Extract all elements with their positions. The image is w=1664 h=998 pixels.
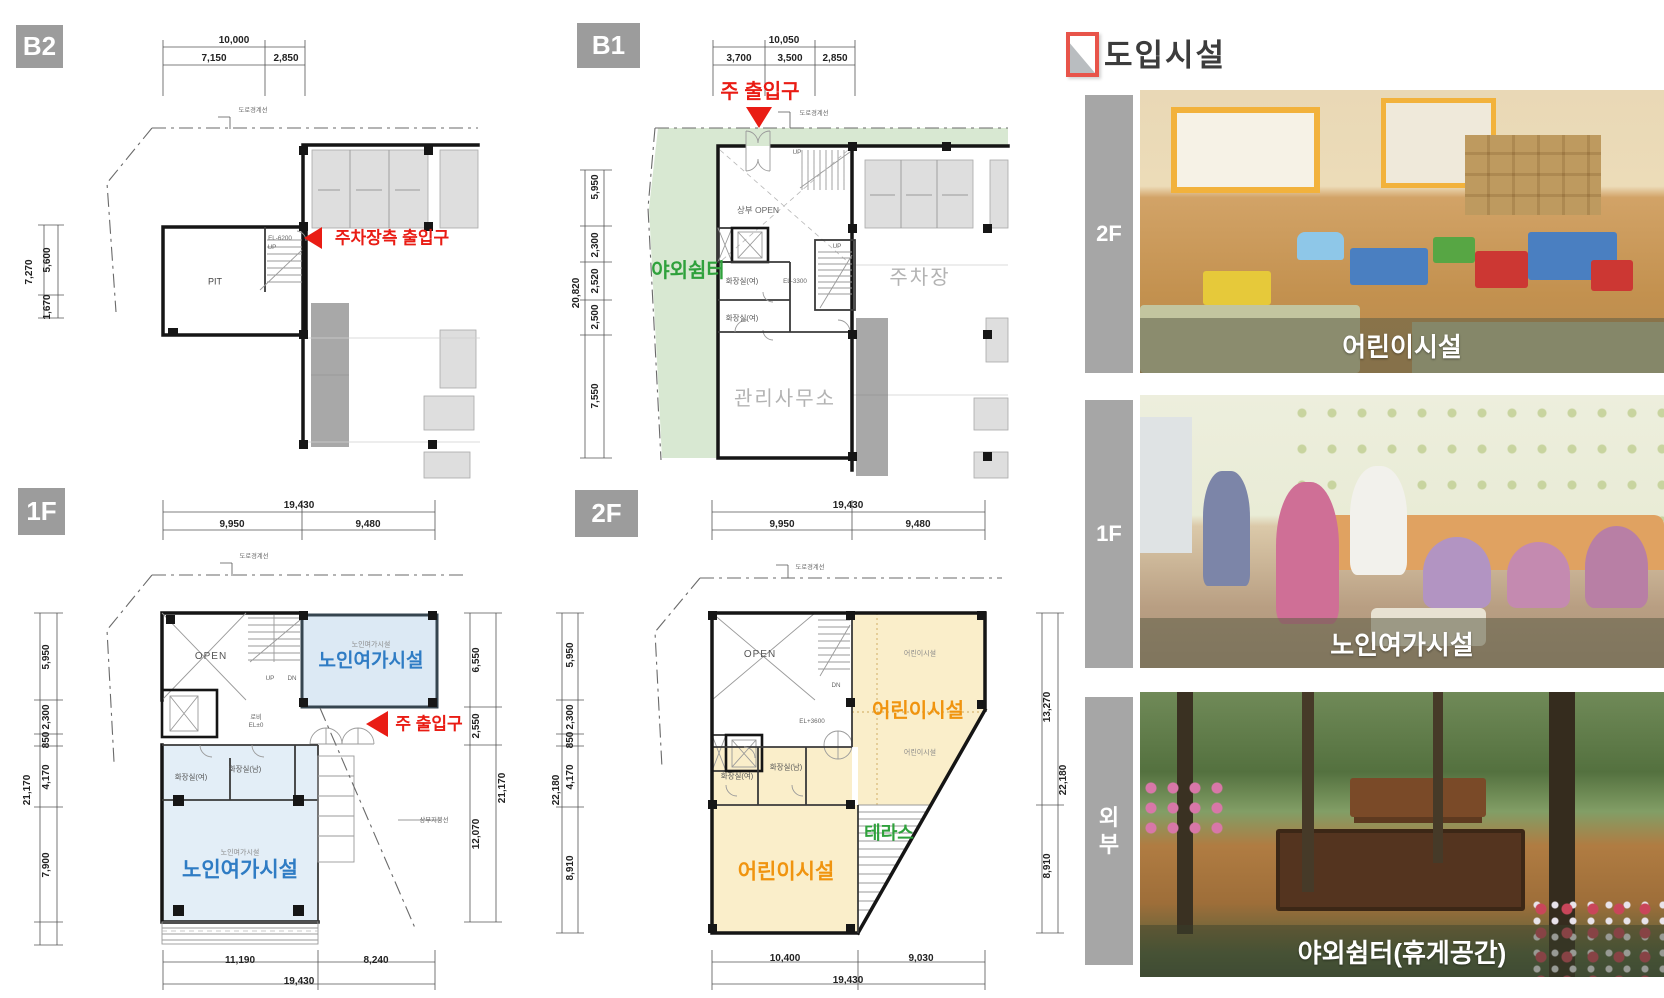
facility-floor-tab-2f: 2F xyxy=(1085,95,1133,373)
f1-dim-bottom-seg1: 11,190 xyxy=(225,956,255,966)
f2-el-label: EL+3600 xyxy=(799,719,824,725)
f1-lobby-label: 로비 xyxy=(250,715,262,721)
f1-toilet-f-label: 화장실(여) xyxy=(175,773,208,781)
f2-dim-left-seg1: 5,950 xyxy=(566,642,576,667)
photo-senior-door xyxy=(1140,417,1192,554)
f2-child-main2-label: 어린이시설 xyxy=(738,862,835,883)
f1-plan-drawing xyxy=(34,500,502,990)
f2-dim-top-seg2: 9,480 xyxy=(905,520,930,530)
f2-child-small2-label: 어린이시설 xyxy=(904,750,936,757)
f2-plan-drawing xyxy=(556,500,1064,990)
photo-children-window xyxy=(1171,107,1319,193)
f1-dim-left-seg1: 5,950 xyxy=(42,644,52,669)
photo-outdoor-flowers-pink xyxy=(1140,778,1224,841)
f1-open-label: OPEN xyxy=(195,652,227,662)
b1-dim-top-seg3: 2,850 xyxy=(822,54,847,64)
f1-senior-main2-label: 노인여가시설 xyxy=(182,860,298,881)
f2-dim-right-seg1: 13,270 xyxy=(1043,692,1053,723)
photo-children-block-blue xyxy=(1350,248,1429,285)
f1-dim-bottom-total: 19,430 xyxy=(284,977,315,987)
f2-dim-left-seg3: 850 xyxy=(566,732,576,749)
b2-parking-entrance-note: 주차장측 출입구 xyxy=(335,230,449,247)
b1-stair2-up-label: UP xyxy=(833,244,842,250)
b2-dim-left-total: 7,270 xyxy=(25,259,35,284)
b2-dim-left-seg1: 5,600 xyxy=(43,247,53,272)
f1-dim-bottom-seg2: 8,240 xyxy=(363,956,388,966)
facility-floor-tab-1f: 1F xyxy=(1085,400,1133,668)
f1-dim-top-seg1: 9,950 xyxy=(219,520,244,530)
b2-road-boundary-label: 도로경계선 xyxy=(239,108,268,114)
f1-dim-left-seg4: 4,170 xyxy=(42,764,52,789)
photo-outdoor-picnic-table xyxy=(1350,778,1486,818)
b1-upper-open-label: 상부 OPEN xyxy=(737,206,779,215)
f1-dim-left-seg5: 7,900 xyxy=(42,852,52,877)
b1-main-entrance-arrow xyxy=(746,107,772,128)
f1-dim-right-seg2: 2,550 xyxy=(472,713,482,738)
b1-floor-badge: B1 xyxy=(577,23,640,68)
f2-dim-left-seg2: 2,300 xyxy=(566,704,576,729)
photo-children-block-green xyxy=(1433,237,1475,262)
f2-road-boundary-label: 도로경계선 xyxy=(796,565,825,571)
f1-dim-left-seg2: 2,300 xyxy=(42,704,52,729)
b1-dim-top-seg2: 3,500 xyxy=(777,54,802,64)
f1-dim-right-seg3: 12,070 xyxy=(472,819,482,850)
photo-outdoor-tree-trunk3 xyxy=(1433,692,1443,863)
b1-dim-left-seg1: 5,950 xyxy=(591,174,601,199)
b1-main-entrance-note: 주 출입구 xyxy=(720,82,799,102)
section-marker-icon xyxy=(1066,32,1099,77)
photo-senior-figure-pink xyxy=(1276,482,1339,624)
photo-children-block-red xyxy=(1475,251,1527,288)
photo-children-block-red2 xyxy=(1591,260,1633,291)
f2-dim-right-seg2: 8,910 xyxy=(1043,853,1053,878)
photo-children-block-yellow xyxy=(1203,271,1271,305)
f2-dim-left-seg4: 4,170 xyxy=(566,764,576,789)
f2-dim-bottom-seg2: 9,030 xyxy=(908,954,933,964)
f1-dim-right-total: 21,170 xyxy=(498,773,508,804)
f2-toilet-f-label: 화장실(여) xyxy=(721,772,754,780)
f1-dim-left-seg3: 850 xyxy=(42,732,52,749)
b1-dim-left-total: 20,820 xyxy=(572,278,582,309)
b2-floor-badge: B2 xyxy=(16,25,63,68)
f1-roof-line-label: 상부지붕선 xyxy=(420,818,449,824)
f1-main-entrance-note: 주 출입구 xyxy=(395,716,462,733)
b1-dim-left-seg3: 2,520 xyxy=(591,268,601,293)
b2-dim-top-seg1: 7,150 xyxy=(201,54,226,64)
b1-dim-top-total: 10,050 xyxy=(769,36,800,46)
photo-senior-figure-purple3 xyxy=(1585,526,1648,608)
b1-dim-left-seg5: 7,550 xyxy=(591,383,601,408)
f1-dim-top-total: 19,430 xyxy=(284,501,315,511)
f1-dim-left-total: 21,170 xyxy=(23,775,33,806)
photo-caption-senior: 노인여가시설 xyxy=(1140,618,1664,668)
f2-open-label: OPEN xyxy=(744,650,776,660)
f2-dim-left-total: 22,180 xyxy=(552,775,562,806)
f2-dim-right-total: 22,180 xyxy=(1059,765,1069,796)
f1-senior-small2-label: 노인여가시설 xyxy=(221,850,260,857)
b2-dim-top-seg2: 2,850 xyxy=(273,54,298,64)
b2-plan-drawing xyxy=(38,40,480,478)
b1-dim-top-seg1: 3,700 xyxy=(726,54,751,64)
b1-toilet-f-label: 화장실(여) xyxy=(726,277,759,285)
photo-outdoor-tree-trunk2 xyxy=(1302,692,1314,892)
photo-senior-figure-white xyxy=(1350,466,1408,575)
f2-terrace-label: 테라스 xyxy=(864,824,914,842)
b1-stair-up-label: UP xyxy=(793,150,802,156)
photo-children-block-lightblue xyxy=(1297,232,1344,260)
f1-dn-label: DN xyxy=(287,676,296,682)
f2-dim-top-seg1: 9,950 xyxy=(769,520,794,530)
b1-office-room-label: 관리사무소 xyxy=(734,389,836,409)
b1-plan-drawing xyxy=(580,40,1008,478)
f1-toilet-m-label: 화장실(남) xyxy=(229,765,262,773)
photo-caption-children: 어린이시설 xyxy=(1140,318,1664,373)
b1-toilet-f2-label: 화장실(여) xyxy=(726,314,759,322)
f2-toilet-m-label: 화장실(남) xyxy=(770,763,803,771)
photo-outdoor-rest-area: 야외쉼터(휴게공간) xyxy=(1140,692,1664,977)
f1-up-label: UP xyxy=(266,676,275,682)
facility-floor-tab-outdoor: 외부 xyxy=(1085,697,1133,965)
b1-el-label: EL-3300 xyxy=(783,279,807,285)
photo-caption-outdoor: 야외쉼터(휴게공간) xyxy=(1140,925,1664,977)
slide-canvas: B2 10,000 7,150 2,850 도로경계선 7,270 5,600 … xyxy=(0,0,1664,998)
f1-lobby-el-label: EL±0 xyxy=(249,723,264,729)
f1-senior-small-label: 노인여가시설 xyxy=(352,642,391,649)
b2-dim-left-seg2: 1,670 xyxy=(43,294,53,319)
b2-dim-top-total: 10,000 xyxy=(219,36,250,46)
b1-dim-left-seg2: 2,300 xyxy=(591,232,601,257)
photo-children-shelf xyxy=(1465,135,1601,214)
f1-dim-top-seg2: 9,480 xyxy=(355,520,380,530)
photo-children-facility: 어린이시설 xyxy=(1140,90,1664,373)
b1-parking-room-label: 주차장 xyxy=(889,268,950,288)
photo-senior-figure-purple2 xyxy=(1507,542,1570,608)
b1-road-boundary-label: 도로경계선 xyxy=(800,111,829,117)
f2-floor-badge: 2F xyxy=(575,490,638,537)
photo-senior-wallpaper xyxy=(1287,395,1664,521)
f2-dim-bottom-total: 19,430 xyxy=(833,976,864,986)
f1-floor-badge: 1F xyxy=(18,488,65,535)
f2-child-small-label: 어린이시설 xyxy=(904,651,936,658)
f1-road-boundary-label: 도로경계선 xyxy=(240,554,269,560)
photo-senior-figure-purple xyxy=(1423,537,1491,608)
photo-senior-facility: 노인여가시설 xyxy=(1140,395,1664,668)
f2-child-main-label: 어린이시설 xyxy=(872,701,964,721)
f1-senior-main-label: 노인여가시설 xyxy=(319,652,424,671)
f2-dn-label: DN xyxy=(831,683,840,689)
f1-dim-right-seg1: 6,550 xyxy=(472,647,482,672)
photo-senior-figure-blue xyxy=(1203,471,1250,586)
section-title: 도입시설 xyxy=(1104,30,1226,75)
facility-floor-tab-outdoor-label: 외부 xyxy=(1097,804,1121,859)
f2-dim-top-total: 19,430 xyxy=(833,501,864,511)
f2-dim-left-seg5: 8,910 xyxy=(566,855,576,880)
b2-stair-el-label: EL-6200 xyxy=(268,236,292,242)
f2-dim-bottom-seg1: 10,400 xyxy=(770,954,801,964)
b1-outdoor-rest-label: 야외쉼터 xyxy=(651,261,725,281)
b2-stair-up-label: UP xyxy=(268,245,277,251)
b2-pit-label: PIT xyxy=(208,278,222,287)
b1-dim-left-seg4: 2,500 xyxy=(591,304,601,329)
